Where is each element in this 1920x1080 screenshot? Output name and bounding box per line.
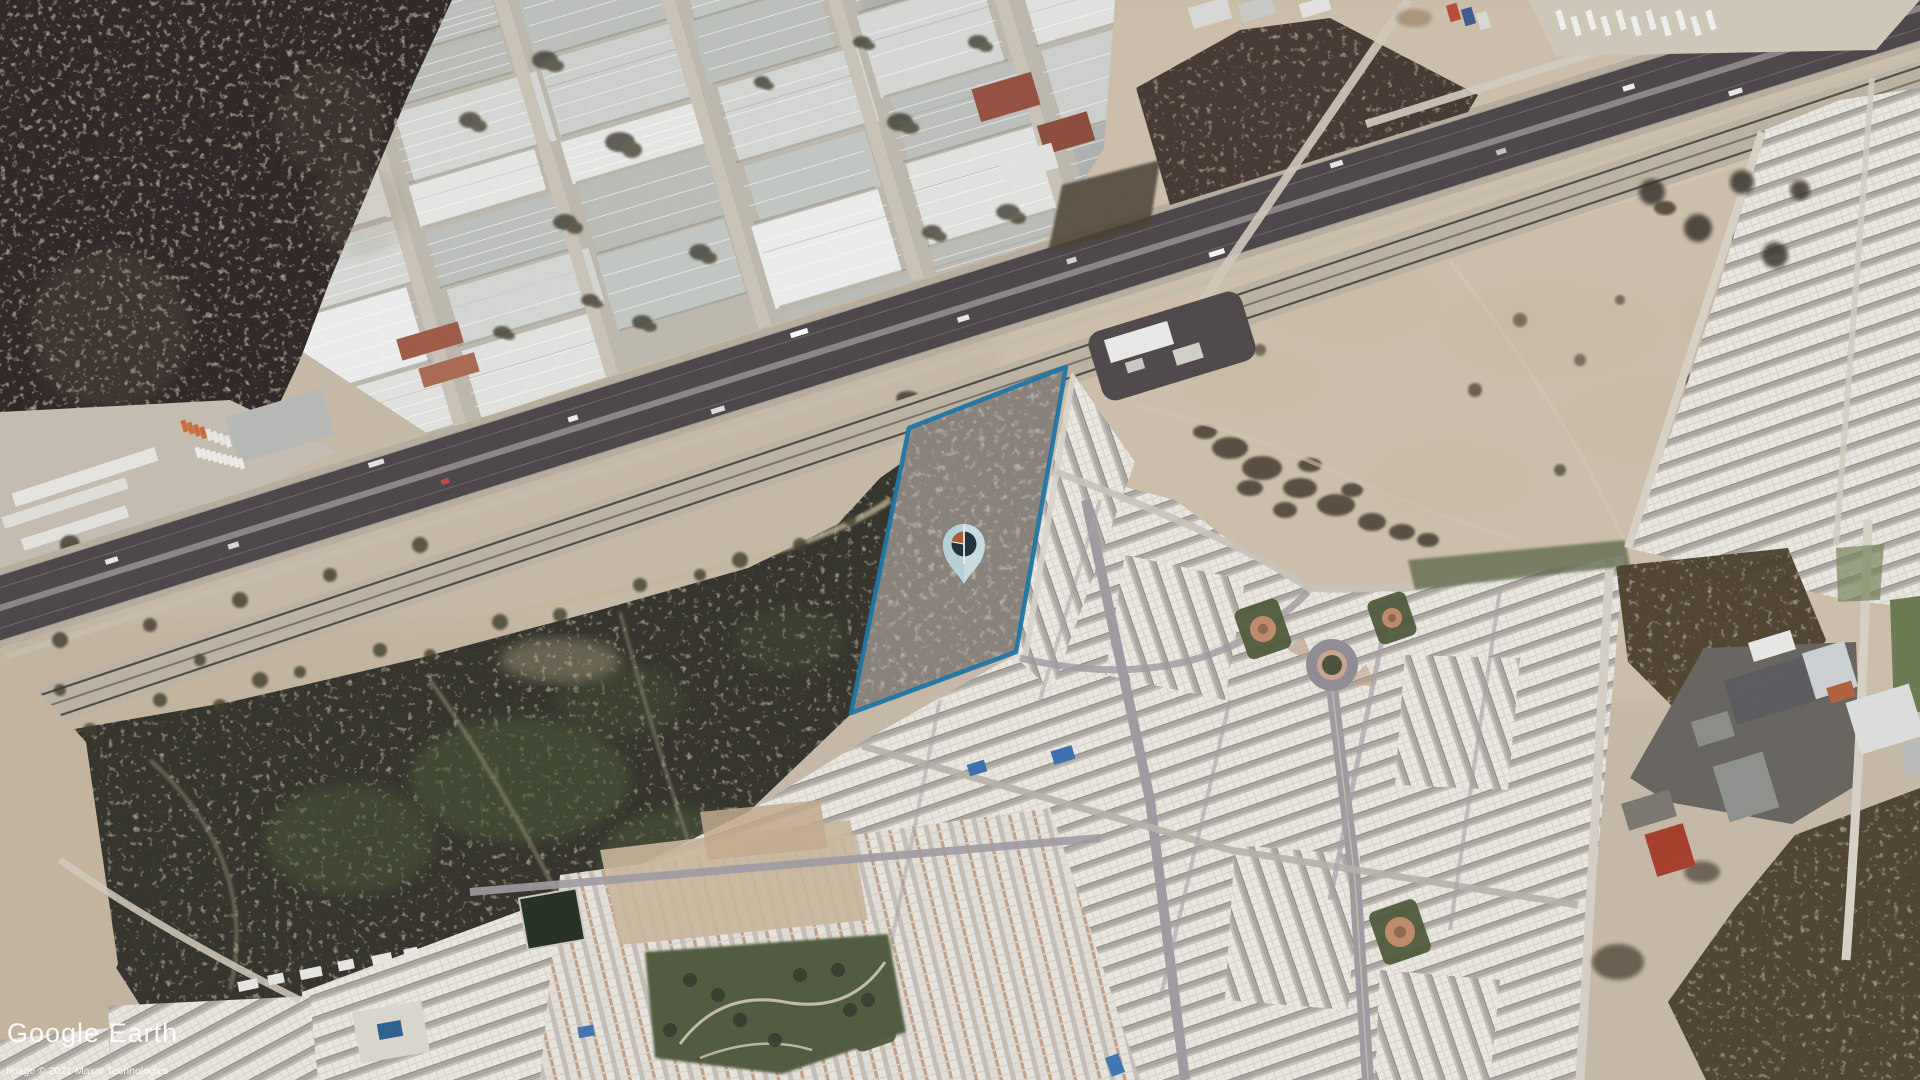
svg-text:Google Earth: Google Earth — [7, 1018, 178, 1048]
svg-text:Image © 2021 Maxar Technologie: Image © 2021 Maxar Technologies — [6, 1065, 168, 1077]
